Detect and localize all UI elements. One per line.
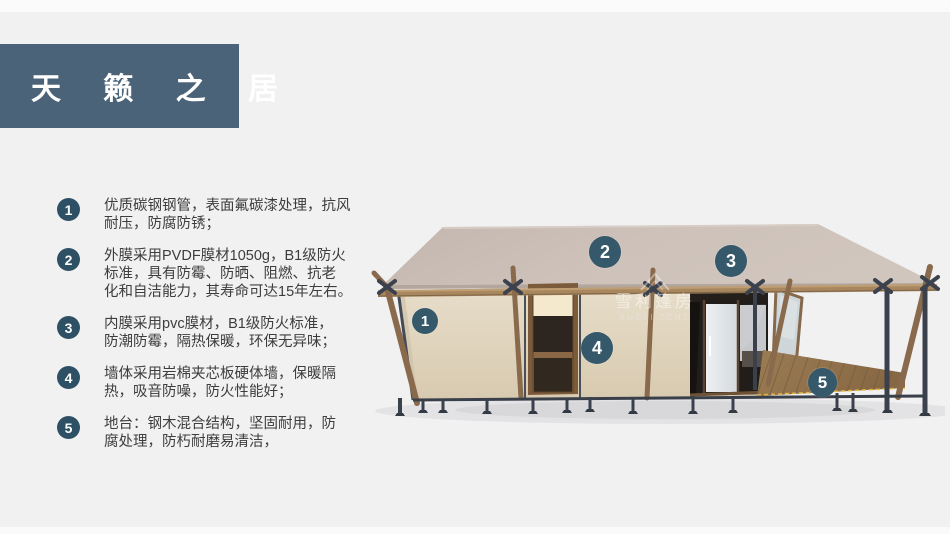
image-marker-5: 5 [808,368,837,397]
bottom-strip [0,527,950,534]
feature-text-4: 墙体采用岩棉夹芯板硬体墙，保暖隔 热，吸音防噪，防火性能好； [104,365,336,401]
feature-row-3: 3 内膜采用pvc膜材，B1级防火标准， 防潮防霉，隔热保暖，环保无异味； [57,315,402,351]
feature-text-5: 地台：钢木混合结构，坚固耐用，防 腐处理，防朽耐磨易清洁， [104,415,336,451]
feature-row-2: 2 外膜采用PVDF膜材1050g，B1级防火 标准，具有防霉、防晒、阻燃、抗老… [57,247,402,301]
feature-badge-3: 3 [57,316,80,339]
feature-text-3: 内膜采用pvc膜材，B1级防火标准， 防潮防霉，隔热保暖，环保无异味； [104,315,336,351]
watermark-cn: 雪利篷房 [615,292,695,311]
entry-door [528,283,578,395]
feature-row-1: 1 优质碳钢钢管，表面氟碳漆处理，抗风 耐压，防腐防锈； [57,197,402,233]
feature-badge-2: 2 [57,248,80,271]
slide: 天 籁 之 居 1 优质碳钢钢管，表面氟碳漆处理，抗风 耐压，防腐防锈； 2 外… [0,0,950,534]
feature-badge-1: 1 [57,198,80,221]
feature-text-1: 优质碳钢钢管，表面氟碳漆处理，抗风 耐压，防腐防锈； [104,197,351,233]
image-marker-1: 1 [412,308,438,334]
feature-text-2: 外膜采用PVDF膜材1050g，B1级防火 标准，具有防霉、防晒、阻燃、抗老 化… [104,247,352,301]
feature-badge-5: 5 [57,416,80,439]
ground-shadow [375,398,945,424]
image-marker-4: 4 [581,332,613,364]
feature-row-4: 4 墙体采用岩棉夹芯板硬体墙，保暖隔 热，吸音防噪，防火性能好； [57,365,402,401]
image-marker-2: 2 [589,236,621,268]
feature-list: 1 优质碳钢钢管，表面氟碳漆处理，抗风 耐压，防腐防锈； 2 外膜采用PVDF膜… [57,197,402,451]
top-strip [0,0,950,12]
feature-badge-4: 4 [57,366,80,389]
watermark-en: XUELI TENT [619,313,690,322]
feature-row-5: 5 地台：钢木混合结构，坚固耐用，防 腐处理，防朽耐磨易清洁， [57,415,402,451]
image-marker-3: 3 [715,245,747,277]
tent-illustration: 雪利篷房 XUELI TENT [370,210,945,435]
page-title: 天 籁 之 居 [0,44,239,128]
